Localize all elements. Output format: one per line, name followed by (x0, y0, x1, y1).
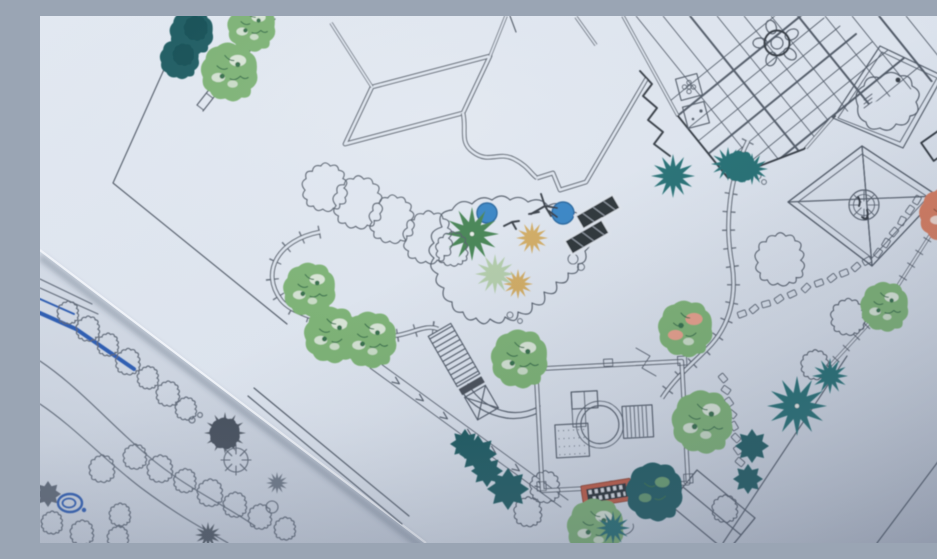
plan-photo-canvas (40, 16, 937, 543)
photo-of-landscape-plan: Photograph of two overlapping landscape-… (40, 16, 937, 543)
corner-shadow-overlay (40, 16, 937, 543)
